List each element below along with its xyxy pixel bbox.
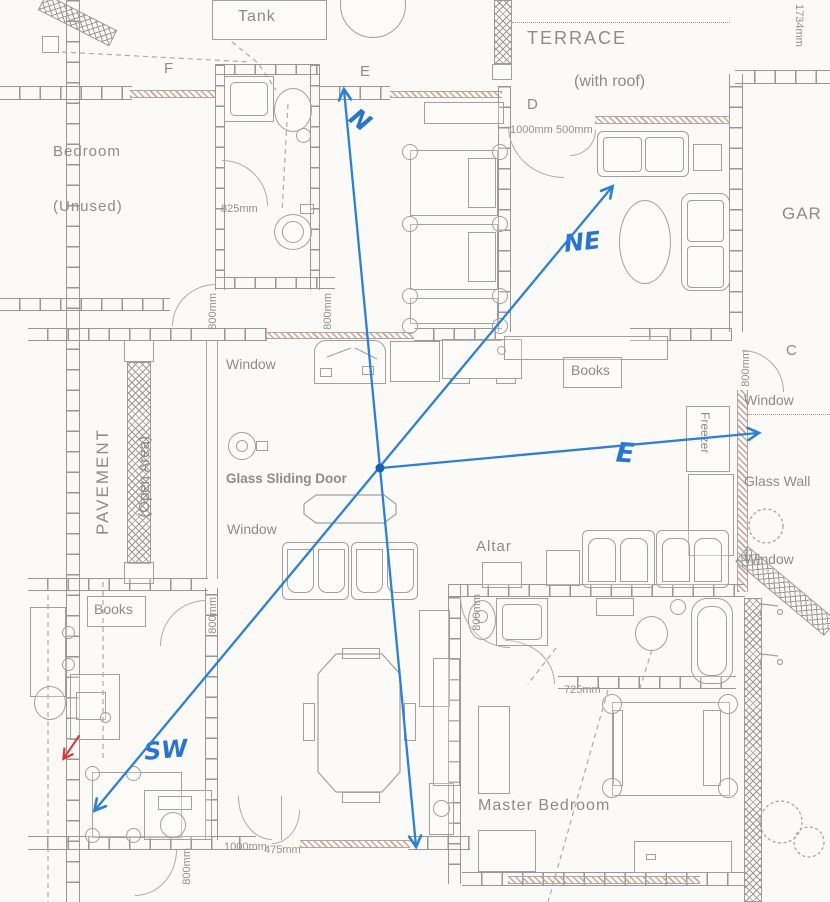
label-window-left-bottom: Window xyxy=(227,521,277,537)
dining-chair-right xyxy=(404,703,416,741)
table-post xyxy=(402,144,418,160)
bed-post xyxy=(85,766,100,781)
planter-cap-top xyxy=(124,340,154,362)
bed-post xyxy=(718,778,738,798)
dresser-knob xyxy=(646,854,656,860)
pillar-hatched-top xyxy=(494,0,512,64)
wall-top-right xyxy=(735,70,830,84)
wall-pavement-bottom xyxy=(28,578,208,591)
wall-pavement-top xyxy=(28,328,208,341)
bathtub-inner xyxy=(697,606,727,676)
window-sill-master-bottom xyxy=(508,876,700,884)
compass-letter-ne: NE xyxy=(563,226,602,258)
stairs-landing xyxy=(42,36,59,53)
cabinet-master xyxy=(478,706,510,794)
office-chair xyxy=(34,686,66,720)
stool-seat xyxy=(433,800,450,817)
window-sill-terrace xyxy=(595,116,730,124)
sofa-cushion xyxy=(620,538,648,582)
table-post xyxy=(402,318,418,334)
bed-post xyxy=(602,694,622,714)
dashed-tank-a xyxy=(62,52,250,62)
wall-terrace-right xyxy=(729,74,743,332)
piano-pedal xyxy=(320,368,332,377)
wall-bath-right xyxy=(310,64,320,290)
terrace-edge-dotted xyxy=(512,22,730,24)
dim-800-kitchen-wall: 800mm xyxy=(322,293,334,330)
door-arc-office-top xyxy=(160,600,206,646)
shrub-icon-right xyxy=(749,509,783,543)
sofa-cushion xyxy=(687,246,724,288)
master-toilet xyxy=(635,616,668,651)
wash-basin xyxy=(274,88,312,132)
bench-master xyxy=(478,830,536,872)
sofa-cushion xyxy=(687,200,724,242)
table-post xyxy=(402,216,418,232)
table-post xyxy=(402,288,418,304)
office-table xyxy=(30,607,66,697)
wardrobe xyxy=(433,658,460,786)
dining-chair-top xyxy=(342,648,380,659)
window-sill-bottom-center xyxy=(300,840,410,848)
label-master-bedroom: Master Bedroom xyxy=(478,797,610,815)
sofa-cushion xyxy=(603,137,642,172)
dim-800-master-door: 800mm xyxy=(471,594,483,631)
dim-800-door-c: 800mm xyxy=(740,350,752,387)
label-altar: Altar xyxy=(476,538,512,555)
terrace-side-table xyxy=(693,144,722,171)
cabinet-foot xyxy=(496,378,516,384)
compass-line-ne-sw xyxy=(95,187,612,810)
drain-circle xyxy=(296,128,311,143)
dim-1734: 1734mm xyxy=(793,4,805,47)
window-sill-top-mid xyxy=(390,91,502,98)
side-stand xyxy=(546,550,580,586)
dim-800-office-door: 800mm xyxy=(207,597,219,634)
window-line-right xyxy=(748,414,830,416)
label-books-office: Books xyxy=(94,601,133,617)
dim-800-left-wall: 800mm xyxy=(207,293,219,330)
door-arc-office-bottom xyxy=(135,850,177,896)
window-sill-top-left xyxy=(130,90,216,98)
wall-bath-bottom xyxy=(215,277,335,289)
shower-inner xyxy=(230,82,268,116)
wall-pavement-right xyxy=(206,341,218,579)
compass-letter-sw: SW xyxy=(143,734,189,766)
tree-icon-bottom-b xyxy=(794,827,824,857)
zone-letter-d: D xyxy=(527,96,538,113)
label-pavement: PAVEMENT xyxy=(93,428,113,535)
cabinet-foot xyxy=(450,378,470,384)
wall-mid-a xyxy=(205,328,267,341)
zone-letter-f: F xyxy=(164,60,173,77)
zone-letter-e: E xyxy=(360,63,370,80)
dim-475: 475mm xyxy=(264,844,301,856)
wall-stub-bath xyxy=(300,204,314,214)
tap-drop-a xyxy=(778,610,783,615)
piano-pedal xyxy=(362,366,374,375)
sofa-cushion xyxy=(662,538,690,582)
terrace-oval-table xyxy=(619,200,671,284)
table-post xyxy=(492,288,508,304)
compass-letter-n: N xyxy=(344,103,377,137)
sofa-cushion xyxy=(287,549,314,593)
bed-post xyxy=(126,766,141,781)
door-arc-double-right xyxy=(272,810,300,844)
master-sink-inner xyxy=(502,604,542,640)
floor-socket xyxy=(100,712,111,723)
compass-center-dot xyxy=(376,464,385,473)
floor-plan-scan: Tank F E TERRACE (with roof) D 1000mm 50… xyxy=(0,0,830,902)
zone-letter-c: C xyxy=(786,342,797,359)
side-table-mid xyxy=(390,341,440,382)
planter-cap-bottom xyxy=(124,562,154,584)
table-inner-2 xyxy=(468,232,496,282)
label-terrace: TERRACE xyxy=(527,28,627,49)
label-garden: GAR xyxy=(782,204,822,224)
dim-1000-top: 1000mm xyxy=(510,124,553,136)
label-window-right-top: Window xyxy=(744,392,794,408)
wall-top-mid xyxy=(320,86,390,100)
table-inner-1 xyxy=(468,158,496,208)
round-tank xyxy=(340,0,406,38)
office-chair-small xyxy=(62,658,75,671)
label-pavement-note: (Open Area) xyxy=(136,436,153,518)
wall-bedroom-bottom xyxy=(0,298,170,311)
door-arc-master-bath xyxy=(505,640,555,684)
door-leaf xyxy=(281,796,283,840)
bed-post xyxy=(602,778,622,798)
sofa-cushion xyxy=(645,137,684,172)
bath-fitting xyxy=(670,599,686,615)
sofa-cushion xyxy=(356,549,383,593)
dim-725: 725mm xyxy=(564,684,601,696)
bed-rail-left xyxy=(613,710,623,786)
table-post xyxy=(492,144,508,160)
label-bedroom-note: (Unused) xyxy=(53,198,123,215)
altar-table xyxy=(482,562,522,588)
sofa-cushion xyxy=(387,549,414,593)
coffee-table-octagon xyxy=(304,495,396,523)
table-section-3 xyxy=(410,298,498,324)
dining-chair-bottom xyxy=(342,792,380,803)
toilet-top-inner xyxy=(282,221,304,243)
bed-rail-right xyxy=(703,710,721,786)
office-chair-small xyxy=(62,626,75,639)
lamp-switch xyxy=(256,441,268,451)
label-glass-sliding-door: Glass Sliding Door xyxy=(226,471,347,486)
dim-800-bottom-door: 800mm xyxy=(181,848,193,885)
dining-table-octagon xyxy=(318,654,400,792)
garden-tap-icon-a xyxy=(760,604,778,616)
label-glass-wall: Glass Wall xyxy=(744,473,810,489)
dining-chair-left xyxy=(303,703,315,741)
kitchen-counter xyxy=(424,102,504,124)
desk-2-chair xyxy=(160,812,186,838)
tap-drop-b xyxy=(778,660,783,665)
dim-500: 500mm xyxy=(556,124,593,136)
pillar-base xyxy=(492,64,512,80)
bed-post xyxy=(718,694,738,714)
label-window-left-top: Window xyxy=(226,356,276,372)
ceiling-lamp-inner xyxy=(236,440,248,452)
bed-post xyxy=(85,828,100,843)
window-sill-mid xyxy=(266,332,414,339)
bath-counter xyxy=(596,598,634,616)
label-freezer: Freezer xyxy=(698,412,712,453)
bed-post xyxy=(126,828,141,843)
label-window-right-bottom: Window xyxy=(744,551,794,567)
sofa-cushion xyxy=(588,538,616,582)
dim-1000-bottom: 1000mm xyxy=(224,841,267,853)
dim-825: 825mm xyxy=(221,203,258,215)
desk-2-keyboard xyxy=(158,796,192,810)
tree-icon-bottom-a xyxy=(760,801,802,843)
label-tank: Tank xyxy=(238,8,276,26)
door-arc-bath xyxy=(222,160,268,206)
label-bedroom: Bedroom xyxy=(53,143,121,160)
label-books-top: Books xyxy=(571,362,610,378)
wall-left-outer xyxy=(66,0,80,902)
label-terrace-note: (with roof) xyxy=(574,73,645,91)
dashed-master-a xyxy=(548,690,608,902)
wall-bath-top xyxy=(215,64,320,75)
piano xyxy=(314,340,386,384)
sofa-cushion xyxy=(694,538,722,582)
wall-hatched-right xyxy=(744,598,762,902)
sofa-cushion xyxy=(318,549,345,593)
table-post xyxy=(492,216,508,232)
wall-top-left xyxy=(0,86,132,100)
garden-tap-icon-b xyxy=(760,654,778,666)
compass-letter-e: E xyxy=(615,437,636,469)
door-arc-double-left xyxy=(238,796,272,840)
table-post xyxy=(492,318,508,334)
